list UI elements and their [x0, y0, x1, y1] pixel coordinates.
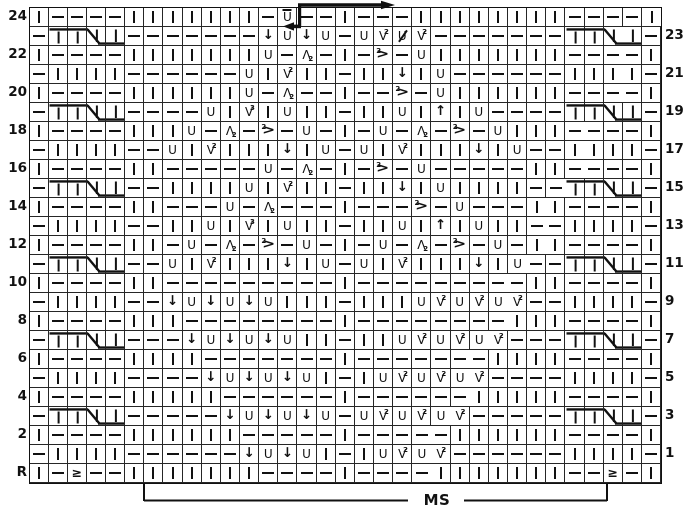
cell-r4-c17-k [336, 84, 355, 103]
cell-r4-c5-p [106, 84, 125, 103]
cell-r17-c11-sl: ↓ [221, 331, 240, 350]
cell-r0-c30-p [585, 8, 604, 27]
cell-r24-c17-k [336, 464, 355, 483]
cell-r2-c27-k [527, 46, 546, 65]
cell-r21-c28-p [546, 407, 565, 426]
cell-r11-c22-up: ↑ [431, 217, 450, 236]
cell-r5-c32-c4 [623, 103, 642, 122]
cell-r8-c5-p [106, 160, 125, 179]
cell-r16-c5-p [106, 312, 125, 331]
cell-r12-c31-p [604, 236, 623, 255]
cell-r3-c24-p [470, 65, 489, 84]
row-label-right-5: 5 [665, 368, 690, 387]
cell-r1-c17-p [336, 27, 355, 46]
cell-r9-c28-p [546, 179, 565, 198]
cell-r4-c32-p [623, 84, 642, 103]
cell-r5-c12-v3: V3 [240, 103, 259, 122]
cell-r13-c21-k [412, 255, 431, 274]
cell-r10-c28-k [546, 198, 565, 217]
cell-r22-c24-k [470, 426, 489, 445]
cell-r19-c30-k [585, 369, 604, 388]
cell-r0-c4-p [87, 8, 106, 27]
cell-r6-c12-p [240, 122, 259, 141]
cell-r23-c31-k [604, 445, 623, 464]
cell-r20-c4-p [87, 388, 106, 407]
cell-r19-c12-sl: ↓ [240, 369, 259, 388]
cell-r17-c5-c4 [106, 331, 125, 350]
cell-r5-c17-p [336, 103, 355, 122]
cell-r19-c25-p [489, 369, 508, 388]
cell-r11-c6-p [125, 217, 144, 236]
cell-r6-c2-p [49, 122, 68, 141]
cell-r5-c28-p [546, 103, 565, 122]
cell-r14-c12-p [240, 274, 259, 293]
cell-r4-c9-k [183, 84, 202, 103]
cell-r2-c13-yo: U [259, 46, 278, 65]
cell-r9-c29-c1 [565, 179, 584, 198]
cell-r17-c22-yo: U [431, 331, 450, 350]
cell-r24-c19-p [374, 464, 393, 483]
cell-r24-c32-p [623, 464, 642, 483]
cell-r20-c26-k [508, 388, 527, 407]
cell-r3-c23-p [451, 65, 470, 84]
cell-r22-c15-p [297, 426, 316, 445]
cell-r10-c9-p [183, 198, 202, 217]
cell-r4-c28-k [546, 84, 565, 103]
cell-r5-c6-p [125, 103, 144, 122]
cell-r11-c20-yo: U [393, 217, 412, 236]
cell-r1-c27-p [527, 27, 546, 46]
cell-r5-c1-p [30, 103, 49, 122]
cell-r3-c18-k [355, 65, 374, 84]
cell-r6-c30-p [585, 122, 604, 141]
cell-r17-c6-p [125, 331, 144, 350]
cell-r21-c15-sl: ↓ [297, 407, 316, 426]
cell-r4-c30-p [585, 84, 604, 103]
cell-r15-c22-v2: V2 [431, 293, 450, 312]
cell-r15-c15-k [297, 293, 316, 312]
cell-r18-c19-p [374, 350, 393, 369]
cell-r10-c30-p [585, 198, 604, 217]
cell-r16-c9-p [183, 312, 202, 331]
cell-r4-c3-p [68, 84, 87, 103]
cell-r18-c8-k [163, 350, 182, 369]
cell-r9-c2-c1 [49, 179, 68, 198]
cell-r8-c13-yo: U [259, 160, 278, 179]
cell-r8-c16-p [317, 160, 336, 179]
cell-r17-c32-c4 [623, 331, 642, 350]
cell-r22-c14-p [278, 426, 297, 445]
cell-r14-c1-k [30, 274, 49, 293]
cell-r24-c13-p [259, 464, 278, 483]
cell-r18-c31-p [604, 350, 623, 369]
cell-r2-c26-k [508, 46, 527, 65]
cell-r7-c3-k [68, 141, 87, 160]
cell-r19-c27-p [527, 369, 546, 388]
cell-r8-c25-p [489, 160, 508, 179]
cell-r17-c2-c1 [49, 331, 68, 350]
cell-r23-c3-k [68, 445, 87, 464]
cell-r12-c18-p [355, 236, 374, 255]
cell-r7-c19-k [374, 141, 393, 160]
cell-r4-c10-k [202, 84, 221, 103]
cell-r10-c21-r2: >2 [412, 198, 431, 217]
cell-r12-c8-p [163, 236, 182, 255]
cell-r1-c10-p [202, 27, 221, 46]
cell-r6-c21-a2: Λ2 [412, 122, 431, 141]
cell-r5-c5-c4 [106, 103, 125, 122]
cell-r6-c29-p [565, 122, 584, 141]
cell-r1-c32-c4 [623, 27, 642, 46]
cell-r16-c13-p [259, 312, 278, 331]
cell-r5-c22-up: ↑ [431, 103, 450, 122]
cell-r9-c21-k [412, 179, 431, 198]
cell-r24-c15-p [297, 464, 316, 483]
cell-r10-c5-p [106, 198, 125, 217]
cell-r13-c16-yo: U [317, 255, 336, 274]
cell-r24-c20-p [393, 464, 412, 483]
cell-r4-c29-p [565, 84, 584, 103]
cell-r20-c19-p [374, 388, 393, 407]
cell-r16-c28-k [546, 312, 565, 331]
cell-r20-c3-p [68, 388, 87, 407]
cell-r9-c24-k [470, 179, 489, 198]
cell-r5-c13-k [259, 103, 278, 122]
cell-r15-c12-sl: ↓ [240, 293, 259, 312]
cell-r21-c6-p [125, 407, 144, 426]
cell-r0-c25-k [489, 8, 508, 27]
cell-r18-c32-p [623, 350, 642, 369]
cell-r6-c13-r2: >2 [259, 122, 278, 141]
cell-r7-c28-p [546, 141, 565, 160]
cell-r2-c16-p [317, 46, 336, 65]
cell-r12-c2-p [49, 236, 68, 255]
cell-r14-c9-p [183, 274, 202, 293]
cell-r14-c16-p [317, 274, 336, 293]
cell-r1-c25-p [489, 27, 508, 46]
cell-r13-c20-v2: V2 [393, 255, 412, 274]
cell-r24-c23-k [451, 464, 470, 483]
cell-r4-c18-p [355, 84, 374, 103]
cell-r19-c17-p [336, 369, 355, 388]
cell-r15-c7-p [144, 293, 163, 312]
cell-r16-c10-p [202, 312, 221, 331]
cell-r24-c11-k [221, 464, 240, 483]
cell-r11-c11-k [221, 217, 240, 236]
cell-r16-c8-k [163, 312, 182, 331]
cell-r24-c22-k [431, 464, 450, 483]
cell-r3-c14-v2: V2 [278, 65, 297, 84]
cell-r23-c21-yo: U [412, 445, 431, 464]
cell-r16-c32-p [623, 312, 642, 331]
cell-r10-c20-p [393, 198, 412, 217]
cell-r17-c13-sl: ↓ [259, 331, 278, 350]
cell-r15-c14-k [278, 293, 297, 312]
cell-r10-c23-yo: U [451, 198, 470, 217]
cell-r22-c20-p [393, 426, 412, 445]
cell-r24-c12-k [240, 464, 259, 483]
cell-r2-c29-p [565, 46, 584, 65]
cell-r13-c25-k [489, 255, 508, 274]
cell-r1-c26-p [508, 27, 527, 46]
cell-r3-c3-k [68, 65, 87, 84]
cell-r12-c17-k [336, 236, 355, 255]
cell-r21-c10-p [202, 407, 221, 426]
cell-r5-c24-yo: U [470, 103, 489, 122]
cell-r13-c4-c3 [87, 255, 106, 274]
cell-r11-c2-k [49, 217, 68, 236]
row-label-left-22: 22 [1, 45, 27, 64]
cell-r4-c25-k [489, 84, 508, 103]
cell-r13-c9-k [183, 255, 202, 274]
cell-r5-c29-c1 [565, 103, 584, 122]
row-label-right-3: 3 [665, 406, 690, 425]
cell-r20-c22-p [431, 388, 450, 407]
cell-r19-c9-p [183, 369, 202, 388]
cell-r4-c14-a2: Λ2 [278, 84, 297, 103]
cell-r18-c15-p [297, 350, 316, 369]
cell-r20-c24-k [470, 388, 489, 407]
cell-r0-c31-p [604, 8, 623, 27]
cell-r10-c29-p [565, 198, 584, 217]
cell-r8-c19-r2: >2 [374, 160, 393, 179]
cell-r14-c15-p [297, 274, 316, 293]
cell-r0-c15-p [297, 8, 316, 27]
cell-r8-c27-k [527, 160, 546, 179]
cell-r0-c27-k [527, 8, 546, 27]
cell-r9-c4-c3 [87, 179, 106, 198]
cell-r18-c7-k [144, 350, 163, 369]
cell-r17-c28-p [546, 331, 565, 350]
cell-r8-c2-p [49, 160, 68, 179]
cell-r3-c28-p [546, 65, 565, 84]
cell-r18-c14-p [278, 350, 297, 369]
cell-r22-c25-k [489, 426, 508, 445]
cell-r3-c8-p [163, 65, 182, 84]
cell-r20-c9-k [183, 388, 202, 407]
cell-r3-c26-p [508, 65, 527, 84]
cell-r9-c14-v2: V2 [278, 179, 297, 198]
cell-r3-c7-p [144, 65, 163, 84]
cell-r13-c14-sl: ↓ [278, 255, 297, 274]
cell-r3-c16-k [317, 65, 336, 84]
cell-r4-c8-k [163, 84, 182, 103]
cell-r11-c7-p [144, 217, 163, 236]
cell-r20-c7-k [144, 388, 163, 407]
cell-r19-c7-p [144, 369, 163, 388]
cell-r6-c1-k [30, 122, 49, 141]
cell-r1-c33-p [642, 27, 661, 46]
cell-r15-c30-k [585, 293, 604, 312]
cell-r6-c23-r2: >2 [451, 122, 470, 141]
cell-r19-c32-k [623, 369, 642, 388]
row-label-left-4: 4 [1, 387, 27, 406]
cell-r10-c33-k [642, 198, 661, 217]
cell-r12-c15-yo: U [297, 236, 316, 255]
cell-r7-c2-k [49, 141, 68, 160]
cell-r17-c10-yo: U [202, 331, 221, 350]
cell-r10-c11-yo: U [221, 198, 240, 217]
cell-r5-c16-k [317, 103, 336, 122]
cell-r2-c11-k [221, 46, 240, 65]
cell-r1-c30-c2 [585, 27, 604, 46]
cell-r2-c21-yo: U [412, 46, 431, 65]
cell-r9-c8-k [163, 179, 182, 198]
cell-r12-c30-p [585, 236, 604, 255]
cell-r24-c33-k [642, 464, 661, 483]
cell-r15-c31-k [604, 293, 623, 312]
cell-r23-c27-p [527, 445, 546, 464]
cell-r15-c20-k [393, 293, 412, 312]
cell-r16-c19-p [374, 312, 393, 331]
cell-r17-c7-p [144, 331, 163, 350]
cell-r6-c15-yo: U [297, 122, 316, 141]
cell-r23-c11-p [221, 445, 240, 464]
cell-r1-c11-p [221, 27, 240, 46]
cell-r9-c5-c4 [106, 179, 125, 198]
cell-r22-c30-p [585, 426, 604, 445]
cell-r14-c10-p [202, 274, 221, 293]
cell-r6-c25-yo: U [489, 122, 508, 141]
cell-r6-c6-k [125, 122, 144, 141]
cell-r14-c28-k [546, 274, 565, 293]
cell-r22-c3-p [68, 426, 87, 445]
cell-r19-c14-sl: ↓ [278, 369, 297, 388]
cell-r0-c18-p [355, 8, 374, 27]
cell-r13-c17-p [336, 255, 355, 274]
cell-r21-c23-v2: V2 [451, 407, 470, 426]
cell-r21-c4-c3 [87, 407, 106, 426]
cell-r6-c24-p [470, 122, 489, 141]
cell-r9-c13-k [259, 179, 278, 198]
cell-r7-c13-k [259, 141, 278, 160]
cell-r6-c33-k [642, 122, 661, 141]
cell-r14-c26-p [508, 274, 527, 293]
cell-r18-c24-p [470, 350, 489, 369]
cell-r18-c26-k [508, 350, 527, 369]
cell-r2-c7-k [144, 46, 163, 65]
cell-r24-c18-p [355, 464, 374, 483]
cell-r13-c26-yo: U [508, 255, 527, 274]
cell-r11-c12-v3: V3 [240, 217, 259, 236]
cell-r11-c27-p [527, 217, 546, 236]
cell-r7-c26-yo: U [508, 141, 527, 160]
cell-r14-c25-p [489, 274, 508, 293]
cell-r21-c30-c2 [585, 407, 604, 426]
cell-r23-c8-p [163, 445, 182, 464]
cell-r10-c7-k [144, 198, 163, 217]
cell-r17-c26-p [508, 331, 527, 350]
cell-r16-c30-p [585, 312, 604, 331]
cell-r7-c8-yo: U [163, 141, 182, 160]
cell-r11-c29-k [565, 217, 584, 236]
cell-r20-c27-k [527, 388, 546, 407]
cell-r15-c21-yo: U [412, 293, 431, 312]
cell-r3-c10-p [202, 65, 221, 84]
cell-r22-c23-k [451, 426, 470, 445]
cell-r21-c12-yo: U [240, 407, 259, 426]
cell-r18-c30-p [585, 350, 604, 369]
cell-r18-c22-p [431, 350, 450, 369]
cell-r9-c22-yo: U [431, 179, 450, 198]
cell-r8-c8-p [163, 160, 182, 179]
cell-r19-c23-yo: U [451, 369, 470, 388]
cell-r20-c23-p [451, 388, 470, 407]
cell-r8-c18-p [355, 160, 374, 179]
cell-r19-c26-p [508, 369, 527, 388]
cell-r0-c16-p [317, 8, 336, 27]
cell-r0-c5-p [106, 8, 125, 27]
cell-r2-c4-p [87, 46, 106, 65]
cell-r13-c32-c4 [623, 255, 642, 274]
cell-r18-c5-p [106, 350, 125, 369]
cell-r0-c24-k [470, 8, 489, 27]
cell-r18-c4-p [87, 350, 106, 369]
cell-r6-c8-k [163, 122, 182, 141]
row-label-right-21: 21 [665, 64, 690, 83]
cell-r7-c16-yo: U [317, 141, 336, 160]
cell-r19-c3-k [68, 369, 87, 388]
cell-r8-c32-p [623, 160, 642, 179]
cell-r22-c7-k [144, 426, 163, 445]
cell-r24-c29-p [565, 464, 584, 483]
cell-r4-c2-p [49, 84, 68, 103]
cell-r10-c16-p [317, 198, 336, 217]
cell-r13-c12-k [240, 255, 259, 274]
cell-r6-c18-p [355, 122, 374, 141]
cell-r6-c28-k [546, 122, 565, 141]
cell-r5-c4-c3 [87, 103, 106, 122]
cell-r13-c15-k [297, 255, 316, 274]
cell-r20-c29-p [565, 388, 584, 407]
cell-r19-c19-yo: U [374, 369, 393, 388]
row-label-left-16: 16 [1, 159, 27, 178]
cell-r19-c2-k [49, 369, 68, 388]
cell-r1-c22-p [431, 27, 450, 46]
row-label-right-7: 7 [665, 330, 690, 349]
cell-r1-c9-p [183, 27, 202, 46]
row-label-left-24: 24 [1, 7, 27, 26]
cell-r24-c28-k [546, 464, 565, 483]
cell-r4-c1-k [30, 84, 49, 103]
cell-r19-c15-yo: U [297, 369, 316, 388]
cell-r21-c1-p [30, 407, 49, 426]
cell-r2-c8-k [163, 46, 182, 65]
row-label-right-17: 17 [665, 140, 690, 159]
cell-r2-c17-k [336, 46, 355, 65]
cell-r18-c23-p [451, 350, 470, 369]
cell-r18-c17-k [336, 350, 355, 369]
cell-r24-c9-k [183, 464, 202, 483]
cell-r19-c29-k [565, 369, 584, 388]
cell-r5-c27-p [527, 103, 546, 122]
cell-r17-c19-k [374, 331, 393, 350]
cell-r1-c19-v2: V2 [374, 27, 393, 46]
cell-r17-c14-yo: U [278, 331, 297, 350]
cell-r20-c15-p [297, 388, 316, 407]
cell-r14-c31-p [604, 274, 623, 293]
cell-r23-c23-p [451, 445, 470, 464]
cell-r1-c15-sl: ↓ [297, 27, 316, 46]
cell-r13-c33-p [642, 255, 661, 274]
cell-r4-c21-p [412, 84, 431, 103]
cell-r24-c1-k [30, 464, 49, 483]
cell-r13-c27-p [527, 255, 546, 274]
cell-r9-c31-c3 [604, 179, 623, 198]
cell-r8-c12-p [240, 160, 259, 179]
cell-r5-c14-yo: U [278, 103, 297, 122]
cell-r7-c20-v2: V2 [393, 141, 412, 160]
